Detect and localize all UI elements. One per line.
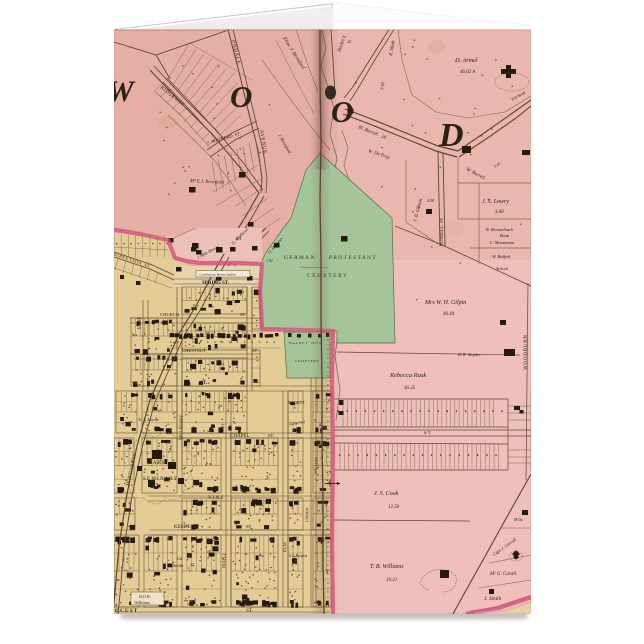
svg-text:S T.: S T. (424, 430, 431, 435)
